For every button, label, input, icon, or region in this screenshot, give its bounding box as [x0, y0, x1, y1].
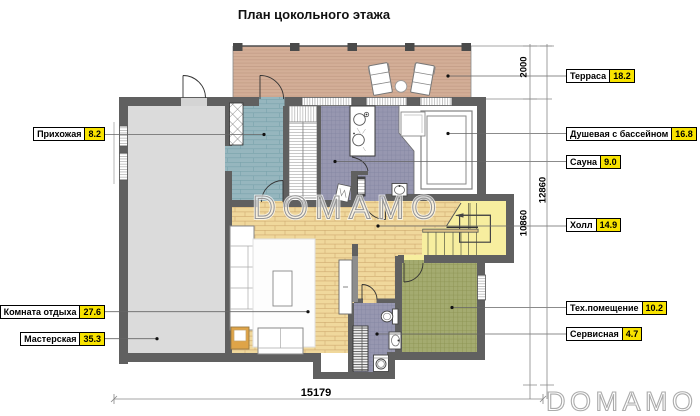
svg-text:12860: 12860 — [538, 177, 549, 203]
svg-text:15179: 15179 — [301, 387, 332, 399]
svg-text:DOMAMO: DOMAMO — [546, 387, 698, 416]
svg-text:10860: 10860 — [519, 210, 530, 236]
svg-text:DOMAMO: DOMAMO — [253, 189, 444, 225]
svg-text:2000: 2000 — [519, 56, 530, 77]
